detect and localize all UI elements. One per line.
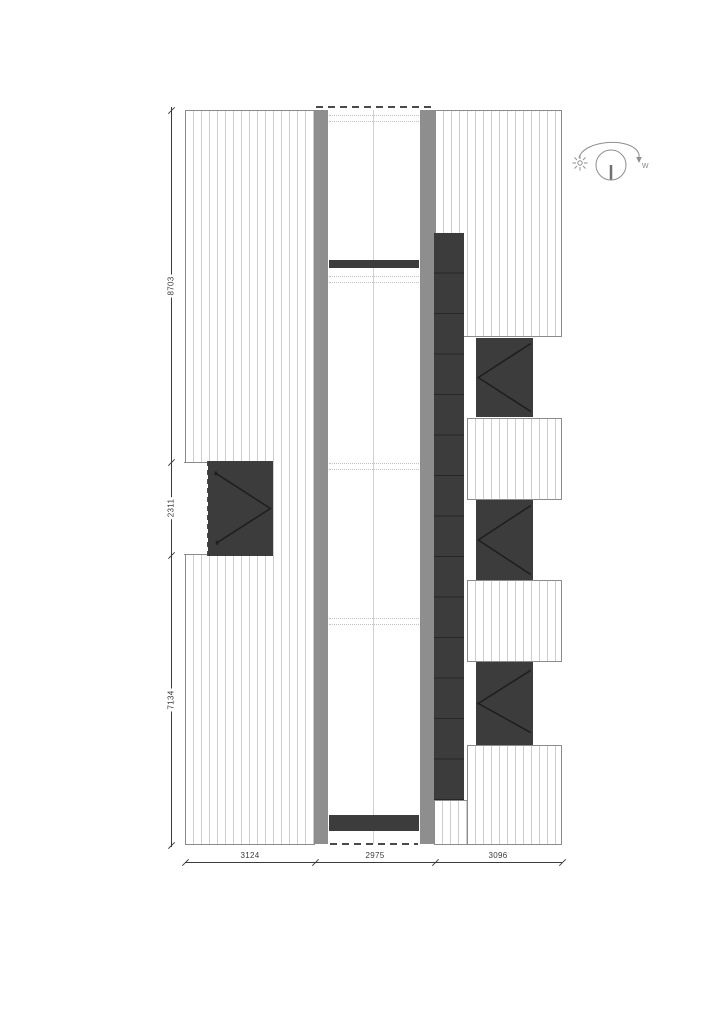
dim-label-bottom-middle: 2975	[366, 851, 385, 860]
right-skylight-1	[476, 338, 533, 417]
roof-plan-canvas: 8703 2311 7134 3124 2975 3096	[0, 0, 724, 1024]
gnomon-icon	[596, 150, 626, 180]
right-roof-strip-2	[467, 580, 562, 662]
right-skylight-3	[476, 662, 533, 745]
right-roof-strip-3	[467, 745, 562, 845]
corridor-center-line	[373, 110, 374, 844]
corridor-joint-line	[329, 618, 419, 619]
dimension-tick	[168, 842, 175, 849]
right-skylight-2	[476, 500, 533, 580]
chevron-left-icon	[476, 500, 533, 580]
corridor-crossbar-top	[329, 260, 419, 268]
corridor-joint-line	[329, 115, 419, 116]
corridor-joint-line	[329, 463, 419, 464]
corridor-crossbar-bottom	[329, 815, 419, 831]
arrowhead-icon	[636, 157, 642, 163]
corridor-joint-line	[329, 121, 419, 122]
left-skylight	[208, 461, 273, 556]
right-roof-bottom-piece	[434, 800, 468, 845]
dimension-tick	[559, 859, 566, 866]
dim-label-bottom-right: 3096	[489, 851, 508, 860]
dim-label-bottom-left: 3124	[241, 851, 260, 860]
corridor-joint-line	[329, 469, 419, 470]
sun-path-symbol: w	[566, 118, 658, 190]
corridor-joint-line	[329, 282, 419, 283]
chevron-right-icon	[208, 461, 273, 556]
west-label: w	[641, 160, 649, 170]
corridor-dashed-edge-top	[316, 106, 434, 108]
corridor-dashed-edge-bottom	[330, 843, 418, 845]
right-roof-strip-1	[467, 418, 562, 500]
dim-label-left-middle: 2311	[167, 497, 176, 519]
corridor-joint-line	[329, 624, 419, 625]
sun-icon	[573, 156, 588, 171]
dimension-line-vertical	[171, 107, 172, 847]
dim-label-left-top: 8703	[167, 275, 176, 298]
chevron-left-icon	[476, 338, 533, 417]
dimension-line-horizontal	[185, 862, 562, 863]
panel-column	[434, 233, 464, 800]
chevron-left-icon	[476, 662, 533, 745]
corridor-joint-line	[329, 276, 419, 277]
dim-label-left-bottom: 7134	[167, 689, 176, 712]
corridor-strip-right	[420, 110, 435, 844]
corridor-strip-left	[315, 110, 328, 844]
